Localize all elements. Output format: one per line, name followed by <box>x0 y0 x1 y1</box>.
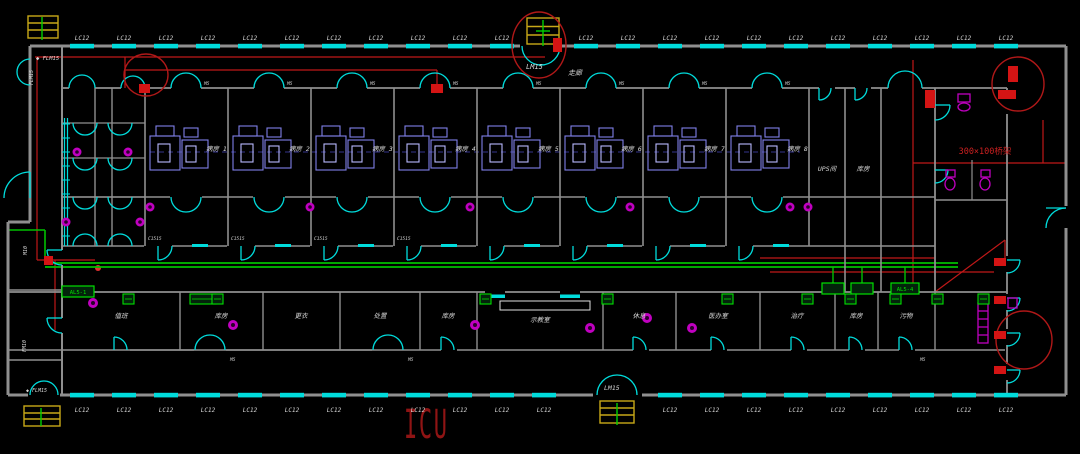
window-label-lc12: LC12 <box>453 35 468 42</box>
window-label-lc12: LC12 <box>411 35 426 42</box>
transom-window <box>607 244 623 247</box>
window-label-lc12: LC12 <box>789 35 804 42</box>
window-segment <box>196 44 220 49</box>
window-label-lc12: LC12 <box>705 407 720 414</box>
bottom-room-label: 示教室 <box>530 316 551 324</box>
window-segment <box>784 44 808 49</box>
door-tag-m5: M5 <box>452 81 459 87</box>
window-tag-c1515: C1515 <box>231 236 245 242</box>
window-segment <box>784 393 808 398</box>
window-label-lc12: LC12 <box>243 407 258 414</box>
magenta-fixture-core <box>473 323 477 327</box>
window-label-lc12: LC12 <box>159 35 174 42</box>
window-segment <box>322 393 346 398</box>
window-label-lc12: LC12 <box>327 35 342 42</box>
window-label-lc12: LC12 <box>495 407 510 414</box>
lm15-label-top: LM15 <box>526 63 543 71</box>
door-tag-m5: M5 <box>369 81 376 87</box>
magenta-fixture-core <box>91 301 95 305</box>
window-tag-c1515: C1515 <box>148 236 162 242</box>
window-label-lc12: LC12 <box>957 35 972 42</box>
window-segment <box>490 44 514 49</box>
door-tag-m5: M5 <box>203 81 210 87</box>
window-label-lc12: LC12 <box>705 35 720 42</box>
window-label-lc12: LC12 <box>999 407 1014 414</box>
window-label-lc12: LC12 <box>747 407 762 414</box>
flm15-label-top-left: ◆ FLM15 <box>36 56 59 62</box>
magenta-fixture-core <box>308 205 312 209</box>
window-label-lc12: LC12 <box>75 407 90 414</box>
bottom-room-label: 更衣 <box>295 312 310 320</box>
bottom-room-label: 库房 <box>850 312 864 320</box>
window-segment <box>868 393 892 398</box>
window-segment <box>742 44 766 49</box>
window-segment <box>196 393 220 398</box>
magenta-fixture-core <box>468 205 472 209</box>
window-tag-c1515: C1515 <box>314 236 328 242</box>
ward-room-label: 病房 6 <box>621 145 642 153</box>
bottom-room-label: 值班 <box>115 312 130 320</box>
bottom-room-label: 处置 <box>374 312 389 320</box>
ward-room-label: 病房 2 <box>289 145 310 153</box>
door-tag-m5: M5 <box>286 81 293 87</box>
window-label-lc12: LC12 <box>999 35 1014 42</box>
window-label-lc12: LC12 <box>957 407 972 414</box>
window-segment <box>448 393 472 398</box>
magenta-fixture-core <box>788 205 792 209</box>
flm15-label-left-vertical: FLM15 <box>29 70 35 85</box>
window-segment <box>154 44 178 49</box>
door-tag-m5: M5 <box>919 357 926 363</box>
door-tag-m5: M5 <box>701 81 708 87</box>
door-tag-m5: M5 <box>618 81 625 87</box>
window-label-lc12: LC12 <box>789 407 804 414</box>
panel-label-al5-1: AL5-1 <box>70 290 87 296</box>
door-tag-m10: M10 <box>23 246 29 256</box>
window-segment <box>448 44 472 49</box>
transom-window <box>441 244 457 247</box>
bottom-room-label: 库房 <box>215 312 229 320</box>
magenta-fixture-core <box>126 150 130 154</box>
window-tag-c1515: C1515 <box>397 236 411 242</box>
window-label-lc12: LC12 <box>75 35 90 42</box>
window-label-lc12: LC12 <box>831 35 846 42</box>
window-segment <box>238 44 262 49</box>
window-label-lc12: LC12 <box>915 407 930 414</box>
window-label-lc12: LC12 <box>327 407 342 414</box>
green-equipment-box <box>822 283 844 294</box>
lm15-label-bottom: LM15 <box>604 384 620 392</box>
door-tag-m5: M5 <box>229 357 236 363</box>
window-segment <box>532 393 556 398</box>
window-segment <box>994 393 1018 398</box>
magenta-fixture-core <box>231 323 235 327</box>
window-label-lc12: LC12 <box>201 35 216 42</box>
room-label-storage-right: 库房 <box>857 165 871 173</box>
window-label-lc12: LC12 <box>243 35 258 42</box>
magenta-fixture-core <box>645 316 649 320</box>
window-segment <box>364 44 388 49</box>
window-label-lc12: LC12 <box>411 407 426 414</box>
door-tag-m5: M5 <box>784 81 791 87</box>
window-segment <box>112 393 136 398</box>
door-tag-m5: M5 <box>407 357 414 363</box>
magenta-fixture-core <box>138 220 142 224</box>
bottom-room-label: 医办室 <box>708 312 729 320</box>
magenta-fixture-core <box>628 205 632 209</box>
bottom-room-label: 库房 <box>442 312 456 320</box>
window-label-lc12: LC12 <box>663 35 678 42</box>
window-segment <box>826 393 850 398</box>
flm15-label-bottom-left: ◆ FLM15 <box>26 388 47 394</box>
door-tag-m5: M5 <box>535 81 542 87</box>
window-segment <box>280 393 304 398</box>
window-segment <box>154 393 178 398</box>
window-label-lc12: LC12 <box>663 407 678 414</box>
window-segment <box>868 44 892 49</box>
window-segment <box>700 393 724 398</box>
window-segment <box>574 44 598 49</box>
window-segment <box>952 393 976 398</box>
window-segment <box>910 393 934 398</box>
ward-room-label: 病房 1 <box>206 145 227 153</box>
floor-plan-canvas: ◆ FLM15 FLM15 M10 FM10 ◆ FLM15 LM15 LM15… <box>0 0 1080 454</box>
magenta-fixture-core <box>75 150 79 154</box>
magenta-fixture-core <box>588 326 592 330</box>
corridor-label: 走廊 <box>568 69 583 77</box>
bottom-room-label: 污物 <box>900 312 915 320</box>
bottom-room-label: 治疗 <box>791 312 806 320</box>
ward-room-label: 病房 8 <box>787 145 808 153</box>
window-label-lc12: LC12 <box>369 35 384 42</box>
window-segment <box>280 44 304 49</box>
window-label-lc12: LC12 <box>285 35 300 42</box>
window-label-lc12: LC12 <box>537 407 552 414</box>
window-label-lc12: LC12 <box>117 35 132 42</box>
window-segment <box>952 44 976 49</box>
magenta-fixture-core <box>806 205 810 209</box>
window-segment <box>658 393 682 398</box>
cable-tray-note: 300×100桥架 <box>959 146 1012 157</box>
window-label-lc12: LC12 <box>873 407 888 414</box>
window-label-lc12: LC12 <box>159 407 174 414</box>
magenta-fixture-core <box>690 326 694 330</box>
window-segment <box>238 393 262 398</box>
green-equipment-box <box>851 283 873 294</box>
window-label-lc12: LC12 <box>117 407 132 414</box>
window-segment <box>112 44 136 49</box>
window-label-lc12: LC12 <box>747 35 762 42</box>
window-segment <box>70 393 94 398</box>
sliding-door-leaf <box>560 295 580 299</box>
window-label-lc12: LC12 <box>621 35 636 42</box>
transom-window <box>358 244 374 247</box>
window-label-lc12: LC12 <box>453 407 468 414</box>
window-segment <box>406 44 430 49</box>
window-segment <box>70 44 94 49</box>
room-label-ups: UPS间 <box>818 165 838 173</box>
window-label-lc12: LC12 <box>201 407 216 414</box>
bottom-room-label: 休息 <box>633 312 647 320</box>
window-segment <box>700 44 724 49</box>
ward-room-label: 病房 4 <box>455 145 476 153</box>
window-label-lc12: LC12 <box>831 407 846 414</box>
window-segment <box>658 44 682 49</box>
window-label-lc12: LC12 <box>495 35 510 42</box>
window-segment <box>490 393 514 398</box>
transom-window <box>690 244 706 247</box>
window-label-lc12: LC12 <box>369 407 384 414</box>
window-segment <box>910 44 934 49</box>
window-segment <box>742 393 766 398</box>
window-label-lc12: LC12 <box>915 35 930 42</box>
transom-window <box>524 244 540 247</box>
window-label-lc12: LC12 <box>579 35 594 42</box>
window-segment <box>994 44 1018 49</box>
magenta-fixture-core <box>148 205 152 209</box>
magenta-fixture-core <box>64 220 68 224</box>
window-label-lc12: LC12 <box>873 35 888 42</box>
ward-room-label: 病房 3 <box>372 145 393 153</box>
window-segment <box>826 44 850 49</box>
window-segment <box>364 393 388 398</box>
window-segment <box>322 44 346 49</box>
red-indicator <box>95 265 101 271</box>
door-tag-fm10: FM10 <box>22 340 28 352</box>
window-segment <box>406 393 430 398</box>
transom-window <box>275 244 291 247</box>
window-label-lc12: LC12 <box>285 407 300 414</box>
ward-room-label: 病房 7 <box>704 145 725 153</box>
window-segment <box>616 44 640 49</box>
transom-window <box>773 244 789 247</box>
panel-label-al5-4: AL5-4 <box>897 287 914 293</box>
transom-window <box>192 244 208 247</box>
ward-room-label: 病房 5 <box>538 145 559 153</box>
